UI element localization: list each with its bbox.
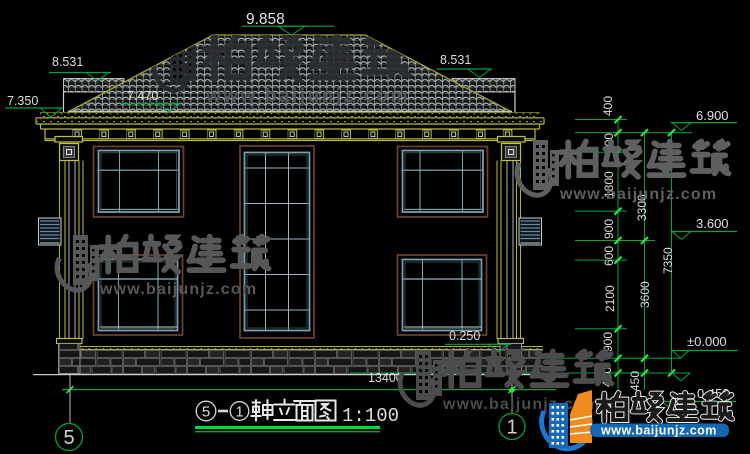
svg-text:5: 5 bbox=[63, 427, 74, 449]
svg-text:0.250: 0.250 bbox=[449, 329, 480, 343]
svg-text:450: 450 bbox=[628, 371, 642, 391]
svg-text:6.900: 6.900 bbox=[696, 108, 729, 123]
svg-text:8.531: 8.531 bbox=[440, 53, 471, 67]
svg-text:www.baijunjz.com: www.baijunjz.com bbox=[600, 423, 717, 437]
svg-text:3.600: 3.600 bbox=[696, 216, 729, 231]
svg-text:7350: 7350 bbox=[661, 247, 675, 274]
svg-text:1:100: 1:100 bbox=[342, 405, 399, 427]
svg-text:www.baijunjz.com: www.baijunjz.com bbox=[205, 86, 410, 107]
svg-text:900: 900 bbox=[601, 332, 615, 352]
svg-text:1: 1 bbox=[506, 417, 517, 439]
svg-text:400: 400 bbox=[601, 96, 615, 116]
svg-text:1: 1 bbox=[235, 404, 243, 421]
svg-text:2100: 2100 bbox=[603, 285, 617, 312]
svg-text:7.350: 7.350 bbox=[7, 94, 38, 108]
svg-text:900: 900 bbox=[602, 219, 616, 239]
svg-text:600: 600 bbox=[602, 246, 616, 266]
svg-text:5: 5 bbox=[202, 404, 210, 421]
svg-text:3600: 3600 bbox=[638, 281, 652, 308]
svg-text:7.470: 7.470 bbox=[127, 89, 158, 103]
svg-text:±0.000: ±0.000 bbox=[687, 334, 727, 349]
svg-text:8.531: 8.531 bbox=[52, 55, 83, 69]
svg-text:9.858: 9.858 bbox=[246, 11, 285, 28]
